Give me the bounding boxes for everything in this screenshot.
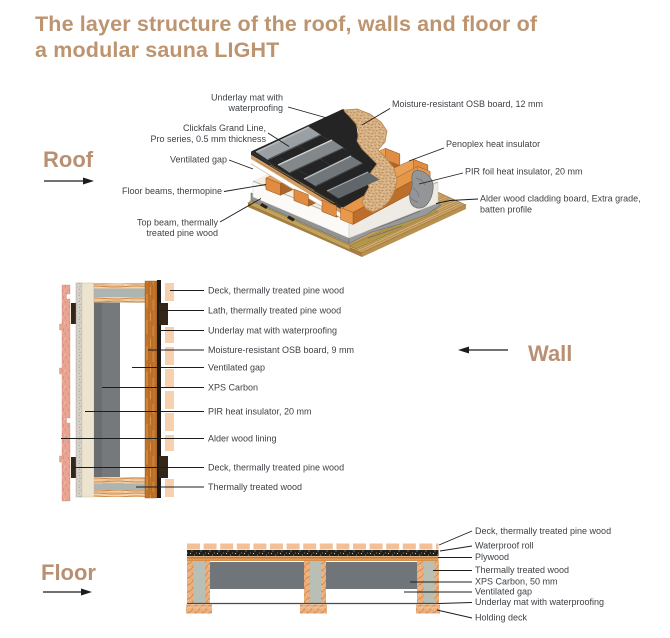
svg-text:a modular sauna LIGHT: a modular sauna LIGHT (35, 38, 279, 62)
svg-text:Thermally treated wood: Thermally treated wood (475, 565, 569, 575)
svg-text:Plywood: Plywood (475, 552, 509, 562)
svg-text:XPS Carbon, 50 mm: XPS Carbon, 50 mm (475, 577, 558, 587)
svg-text:The layer structure of the roo: The layer structure of the roof, walls a… (35, 12, 538, 36)
svg-text:Moisture-resistant OSB board,: Moisture-resistant OSB board, 12 mm (392, 99, 543, 109)
svg-text:Alder wood cladding board, Ext: Alder wood cladding board, Extra grade, (480, 194, 641, 204)
svg-text:Ventilated gap: Ventilated gap (475, 587, 532, 597)
svg-text:Penoplex heat insulator: Penoplex heat insulator (446, 139, 540, 149)
svg-text:Deck, thermally treated pine w: Deck, thermally treated pine wood (208, 286, 344, 296)
svg-text:Underlay mat with waterproofin: Underlay mat with waterproofing (208, 326, 337, 336)
svg-text:Ventilated gap: Ventilated gap (170, 155, 227, 165)
svg-text:Roof: Roof (43, 147, 94, 172)
svg-text:Floor beams, thermopine: Floor beams, thermopine (122, 186, 222, 196)
svg-text:treated pine wood: treated pine wood (146, 228, 218, 238)
svg-text:Moisture-resistant OSB board,: Moisture-resistant OSB board, 9 mm (208, 345, 354, 355)
svg-text:PIR foil heat insulator, 20 mm: PIR foil heat insulator, 20 mm (465, 167, 583, 177)
svg-text:XPS Carbon: XPS Carbon (208, 383, 258, 393)
svg-text:Floor: Floor (41, 560, 96, 585)
svg-text:Ventilated gap: Ventilated gap (208, 363, 265, 373)
svg-text:Clickfals Grand Line,: Clickfals Grand Line, (183, 123, 266, 133)
svg-text:Top beam, thermally: Top beam, thermally (137, 218, 219, 228)
svg-text:Deck, thermally treated pine w: Deck, thermally treated pine wood (208, 463, 344, 473)
svg-text:waterproofing: waterproofing (227, 103, 283, 113)
svg-text:Underlay mat with waterproofin: Underlay mat with waterproofing (475, 597, 604, 607)
svg-text:Alder wood lining: Alder wood lining (208, 434, 277, 444)
svg-text:Deck, thermally treated pine w: Deck, thermally treated pine wood (475, 526, 611, 536)
svg-text:Pro series, 0.5 mm thickness: Pro series, 0.5 mm thickness (150, 134, 266, 144)
svg-text:Lath, thermally treated pine w: Lath, thermally treated pine wood (208, 306, 341, 316)
svg-text:Waterproof roll: Waterproof roll (475, 541, 534, 551)
svg-text:Holding deck: Holding deck (475, 613, 528, 623)
svg-text:Thermally treated wood: Thermally treated wood (208, 482, 302, 492)
svg-text:PIR heat insulator, 20 mm: PIR heat insulator, 20 mm (208, 407, 312, 417)
svg-text:Wall: Wall (528, 341, 572, 366)
svg-text:batten profile: batten profile (480, 205, 532, 215)
svg-text:Underlay mat with: Underlay mat with (211, 93, 283, 103)
